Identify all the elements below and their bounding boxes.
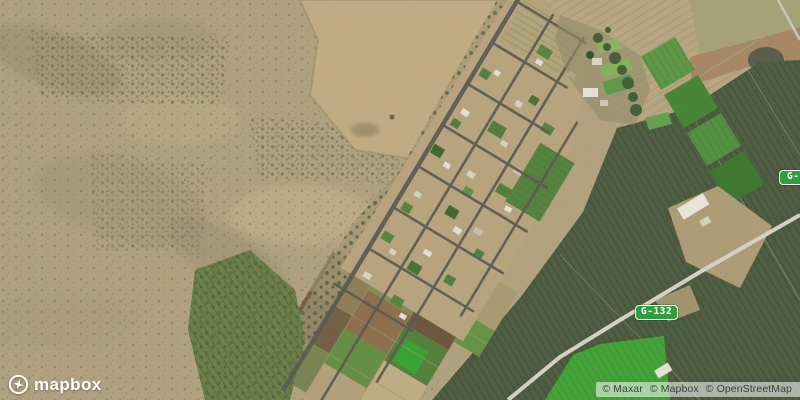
image-grain [0,0,800,400]
attribution-maxar[interactable]: © Maxar [602,383,643,395]
road-shield-edge-partial: G- [779,170,800,185]
attribution-openstreetmap[interactable]: © OpenStreetMap [706,383,792,395]
map-canvas[interactable] [0,0,800,400]
mapbox-logo-text: mapbox [34,375,102,395]
attribution-mapbox[interactable]: © Mapbox [650,383,699,395]
satellite-imagery [0,0,800,400]
mapbox-logo[interactable]: mapbox [8,374,102,395]
attribution-bar: © Maxar © Mapbox © OpenStreetMap [596,382,800,397]
road-shield-g132: G-132 [635,305,678,320]
mapbox-logo-icon [8,374,29,395]
